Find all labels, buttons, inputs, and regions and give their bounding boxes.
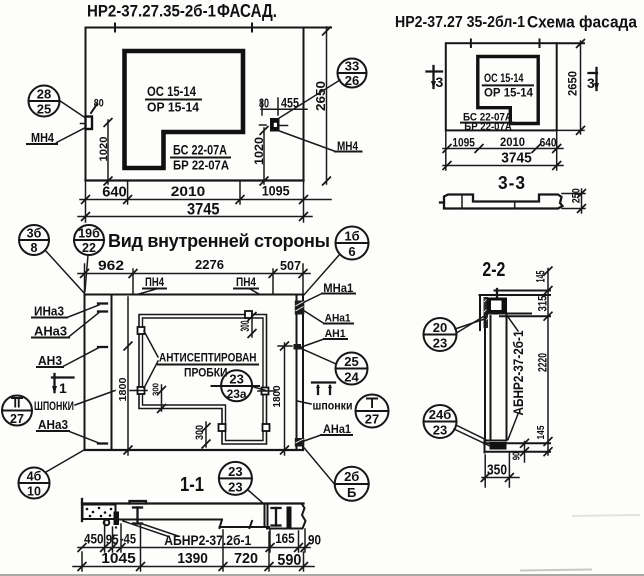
svg-text:ПН4: ПН4 bbox=[236, 277, 257, 289]
svg-text:720: 720 bbox=[234, 550, 258, 567]
svg-text:2б: 2б bbox=[344, 469, 359, 484]
svg-text:ОР 15-14: ОР 15-14 bbox=[147, 100, 200, 115]
svg-text:3б: 3б bbox=[27, 227, 42, 241]
svg-text:1800: 1800 bbox=[272, 385, 283, 407]
svg-text:507: 507 bbox=[280, 258, 301, 273]
svg-text:25: 25 bbox=[344, 354, 358, 369]
svg-text:Схема фасада: Схема фасада bbox=[527, 13, 637, 32]
svg-text:1б: 1б bbox=[344, 229, 359, 244]
svg-text:962: 962 bbox=[98, 257, 124, 273]
svg-text:8: 8 bbox=[31, 241, 38, 255]
svg-text:28: 28 bbox=[37, 87, 51, 102]
svg-text:10: 10 bbox=[27, 485, 41, 499]
svg-text:315: 315 bbox=[536, 295, 550, 311]
svg-text:80: 80 bbox=[259, 96, 269, 111]
svg-text:27: 27 bbox=[10, 412, 24, 426]
svg-text:300: 300 bbox=[194, 425, 206, 440]
svg-text:23а: 23а bbox=[227, 387, 247, 401]
svg-text:АБНР2-37-2б-1: АБНР2-37-2б-1 bbox=[510, 330, 526, 415]
svg-text:1800: 1800 bbox=[118, 377, 129, 401]
svg-text:НР2-37.27 35-2бл-1: НР2-37.27 35-2бл-1 bbox=[395, 14, 525, 31]
svg-text:250: 250 bbox=[571, 188, 583, 203]
svg-text:300: 300 bbox=[240, 321, 252, 332]
svg-text:26: 26 bbox=[345, 73, 359, 88]
svg-text:АНТИСЕПТИРОВАН: АНТИСЕПТИРОВАН bbox=[159, 351, 257, 365]
svg-text:145: 145 bbox=[534, 270, 548, 282]
svg-text:95: 95 bbox=[106, 531, 119, 547]
svg-text:БС 22-07А: БС 22-07А bbox=[173, 143, 227, 158]
svg-text:300: 300 bbox=[151, 383, 161, 396]
svg-text:1020: 1020 bbox=[252, 137, 266, 165]
svg-text:ШПОНКИ: ШПОНКИ bbox=[34, 399, 74, 413]
svg-text:4б: 4б bbox=[27, 470, 42, 484]
svg-text:22: 22 bbox=[82, 241, 96, 255]
svg-text:3745: 3745 bbox=[187, 201, 220, 219]
svg-text:1045: 1045 bbox=[101, 550, 136, 567]
svg-text:2-2: 2-2 bbox=[482, 259, 505, 281]
svg-text:350: 350 bbox=[487, 463, 507, 479]
svg-text:1020: 1020 bbox=[98, 137, 110, 162]
svg-text:24б: 24б bbox=[429, 407, 452, 422]
svg-text:23: 23 bbox=[228, 464, 242, 479]
svg-text:590: 590 bbox=[277, 552, 301, 569]
svg-text:1390: 1390 bbox=[177, 550, 208, 567]
svg-text:3745: 3745 bbox=[501, 151, 532, 167]
svg-text:ОР 15-14: ОР 15-14 bbox=[484, 86, 533, 100]
svg-text:3: 3 bbox=[587, 75, 595, 91]
svg-text:23: 23 bbox=[433, 336, 447, 351]
svg-text:АНа3: АНа3 bbox=[34, 325, 67, 339]
svg-text:НР2-37.27.35-2б-1: НР2-37.27.35-2б-1 bbox=[87, 2, 216, 21]
svg-text:145: 145 bbox=[536, 425, 547, 439]
svg-text:20: 20 bbox=[433, 320, 447, 335]
svg-text:27: 27 bbox=[365, 412, 379, 427]
svg-text:БР 22-07А: БР 22-07А bbox=[173, 158, 230, 173]
svg-text:БР 22-07А: БР 22-07А bbox=[464, 121, 512, 133]
svg-text:23: 23 bbox=[228, 480, 242, 495]
svg-text:2650: 2650 bbox=[566, 71, 580, 96]
svg-text:90: 90 bbox=[512, 451, 523, 460]
svg-text:19б: 19б bbox=[78, 227, 100, 241]
svg-text:640: 640 bbox=[540, 136, 557, 150]
svg-text:2220: 2220 bbox=[536, 353, 550, 372]
svg-text:АНа3: АНа3 bbox=[38, 418, 68, 432]
svg-text:ИНа3: ИНа3 bbox=[34, 305, 64, 319]
svg-text:Б: Б bbox=[347, 485, 356, 500]
svg-text:24: 24 bbox=[344, 370, 359, 385]
svg-text:25: 25 bbox=[37, 102, 51, 117]
svg-text:-45: -45 bbox=[120, 531, 136, 547]
svg-text:МН4: МН4 bbox=[31, 131, 54, 145]
svg-text:450: 450 bbox=[84, 531, 104, 547]
svg-text:ОС 15-14: ОС 15-14 bbox=[147, 83, 196, 99]
svg-text:2010: 2010 bbox=[171, 183, 206, 199]
svg-text:ОС 15-14: ОС 15-14 bbox=[484, 71, 524, 85]
svg-text:ФАСАД.: ФАСАД. bbox=[217, 1, 277, 21]
svg-text:АН3: АН3 bbox=[38, 354, 62, 368]
svg-text:ПН4: ПН4 bbox=[145, 277, 164, 289]
svg-text:1095: 1095 bbox=[452, 136, 475, 150]
svg-text:640: 640 bbox=[102, 184, 127, 201]
svg-text:Вид внутренней стороны: Вид внутренней стороны bbox=[108, 231, 330, 251]
svg-text:6: 6 bbox=[348, 244, 355, 259]
svg-text:3: 3 bbox=[436, 74, 444, 90]
svg-text:ПРОБКИ: ПРОБКИ bbox=[184, 366, 228, 380]
svg-text:шпонки: шпонки bbox=[313, 399, 353, 413]
svg-text:1-1: 1-1 bbox=[180, 474, 204, 496]
svg-text:2276: 2276 bbox=[195, 257, 224, 272]
svg-text:2010: 2010 bbox=[500, 135, 525, 149]
svg-text:23: 23 bbox=[433, 423, 447, 438]
svg-text:90: 90 bbox=[308, 532, 321, 548]
svg-text:3-3: 3-3 bbox=[498, 173, 526, 193]
svg-text:1: 1 bbox=[59, 380, 67, 396]
svg-text:23: 23 bbox=[229, 372, 243, 387]
svg-text:165: 165 bbox=[275, 531, 295, 546]
svg-text:33: 33 bbox=[345, 59, 359, 74]
svg-text:1095: 1095 bbox=[262, 183, 290, 199]
